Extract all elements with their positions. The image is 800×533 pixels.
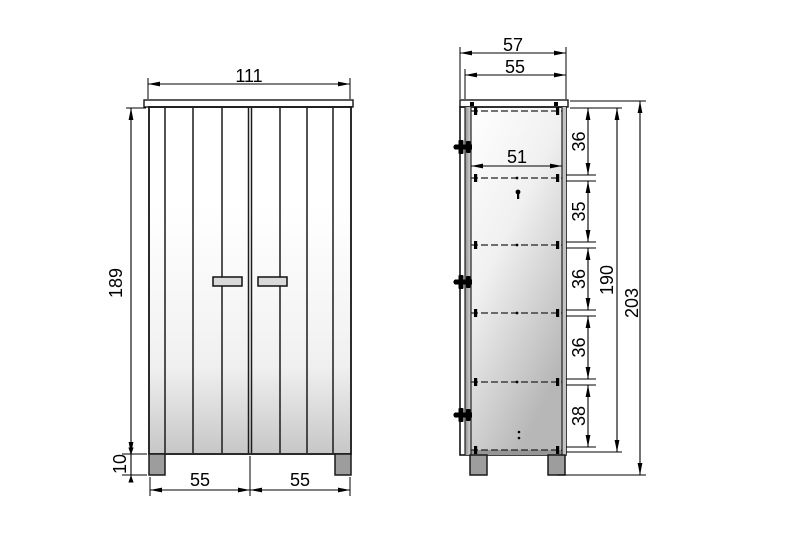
front-left-leg xyxy=(149,454,165,475)
hinge-icon-bottom xyxy=(453,408,472,422)
front-right-leg xyxy=(335,454,351,475)
front-dimension-height: 189 xyxy=(106,108,147,454)
compartment-0-label: 36 xyxy=(569,131,589,151)
side-dimension-depth-body: 55 xyxy=(465,57,566,99)
front-leg-height-label: 10 xyxy=(110,454,130,474)
side-top-board xyxy=(460,100,568,107)
side-front-leg xyxy=(470,455,487,475)
front-body-shading xyxy=(150,108,350,453)
right-door-handle xyxy=(258,277,287,286)
front-width-label: 111 xyxy=(235,66,262,86)
front-view xyxy=(144,100,353,475)
front-dimension-width: 111 xyxy=(148,66,350,99)
compartment-4-label: 38 xyxy=(569,406,589,426)
side-top-board-pins xyxy=(470,102,558,106)
side-total-height-label: 203 xyxy=(622,288,642,318)
left-door-handle xyxy=(213,277,242,286)
hinge-icon-middle xyxy=(453,275,472,289)
compartment-2-label: 36 xyxy=(569,269,589,289)
front-left-door-width-label: 55 xyxy=(190,470,210,490)
side-inner-height-label: 190 xyxy=(597,265,617,295)
side-depth-total-label: 57 xyxy=(503,35,523,55)
side-shelf-depth-label: 51 xyxy=(507,147,527,167)
compartment-3-label: 36 xyxy=(569,337,589,357)
technical-drawing-canvas: 111 189 10 55 55 xyxy=(0,0,800,533)
front-right-door-width-label: 55 xyxy=(290,470,310,490)
front-top-board xyxy=(144,100,353,107)
front-dimension-doors: 55 55 xyxy=(150,456,350,496)
compartment-1-label: 35 xyxy=(569,201,589,221)
hinge-icon-top xyxy=(453,140,472,154)
front-height-label: 189 xyxy=(106,268,126,298)
side-back-leg xyxy=(548,455,565,475)
drawing-svg: 111 189 10 55 55 xyxy=(0,0,800,533)
front-dimension-leg-height: 10 xyxy=(110,447,147,483)
side-depth-body-label: 55 xyxy=(505,57,525,77)
